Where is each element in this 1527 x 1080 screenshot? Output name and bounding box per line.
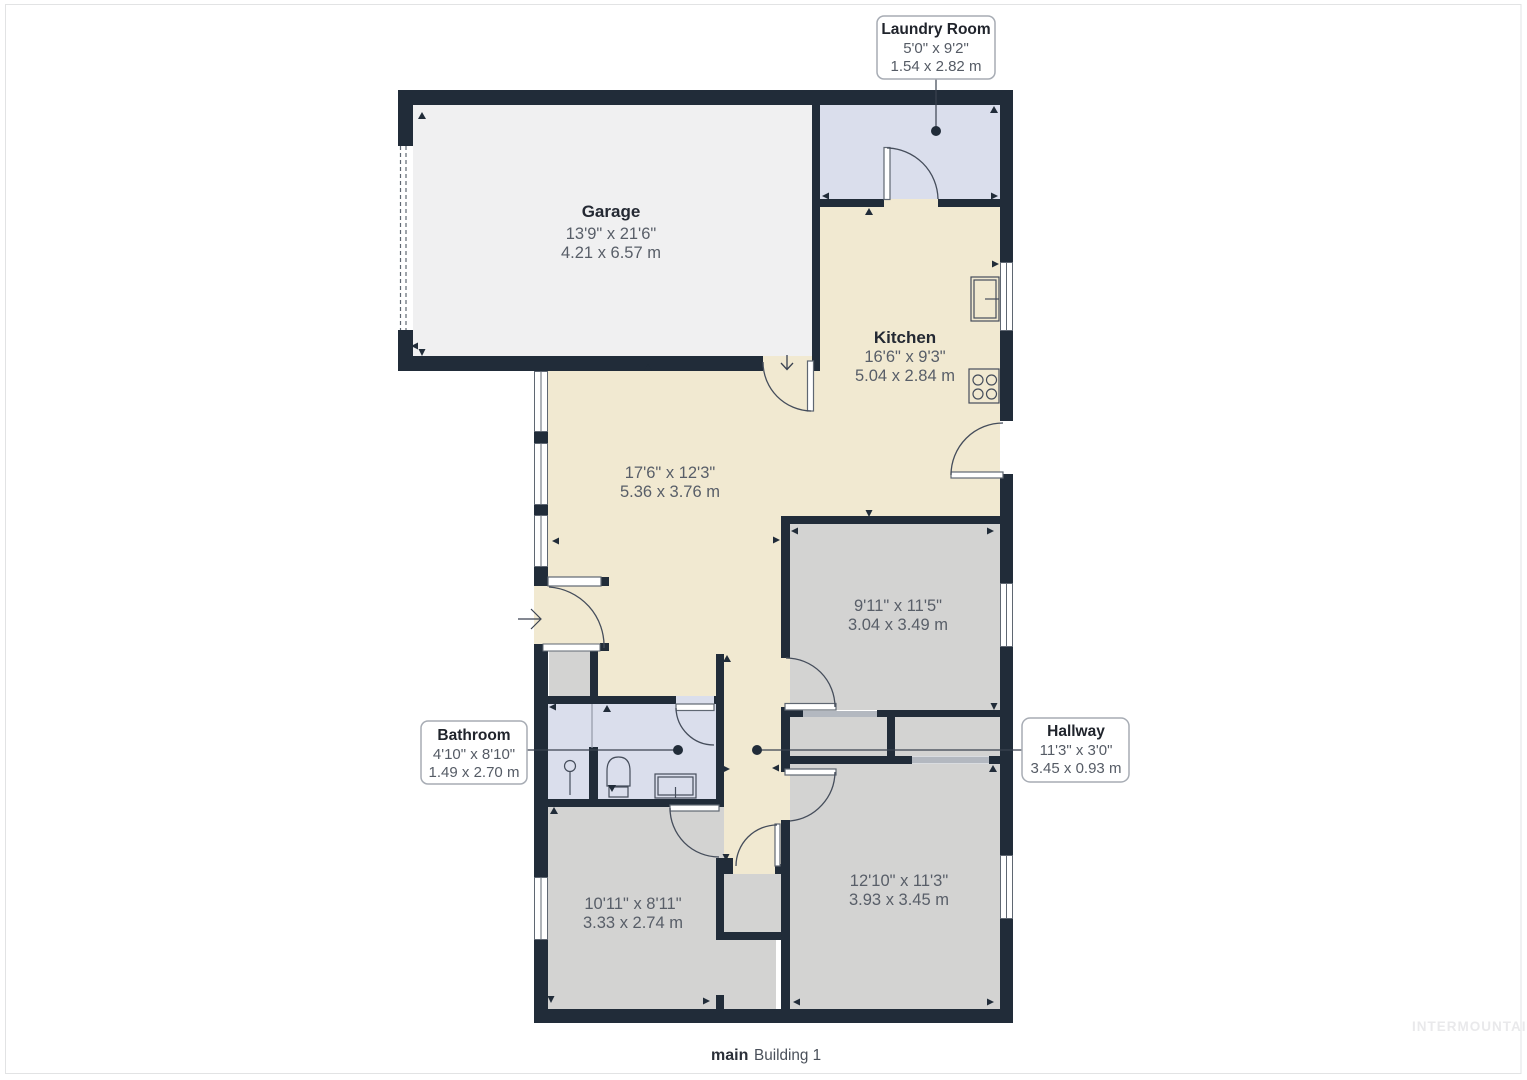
svg-text:16'6" x 9'3": 16'6" x 9'3" — [864, 348, 945, 366]
svg-text:3.45 x 0.93 m: 3.45 x 0.93 m — [1031, 760, 1122, 777]
svg-text:5.04 x 2.84 m: 5.04 x 2.84 m — [855, 367, 955, 385]
svg-text:Garage: Garage — [582, 202, 641, 221]
svg-text:3.04 x 3.49 m: 3.04 x 3.49 m — [848, 616, 948, 634]
svg-text:3.93 x 3.45 m: 3.93 x 3.45 m — [849, 891, 949, 909]
svg-text:1.54 x 2.82 m: 1.54 x 2.82 m — [891, 58, 982, 75]
svg-text:13'9" x 21'6": 13'9" x 21'6" — [566, 225, 657, 243]
svg-text:10'11" x 8'11": 10'11" x 8'11" — [584, 895, 681, 913]
svg-text:Building 1: Building 1 — [754, 1047, 821, 1064]
svg-text:1.49 x 2.70 m: 1.49 x 2.70 m — [429, 764, 520, 781]
svg-text:12'10" x 11'3": 12'10" x 11'3" — [850, 872, 949, 890]
svg-text:5'0" x 9'2": 5'0" x 9'2" — [903, 40, 969, 57]
svg-text:Bathroom: Bathroom — [437, 727, 510, 744]
svg-text:5.36 x 3.76 m: 5.36 x 3.76 m — [620, 483, 720, 501]
svg-text:INTERMOUNTAIN: INTERMOUNTAIN — [1412, 1019, 1527, 1034]
svg-text:Hallway: Hallway — [1047, 723, 1105, 740]
svg-text:3.33 x 2.74 m: 3.33 x 2.74 m — [583, 914, 683, 932]
svg-text:Laundry Room: Laundry Room — [881, 21, 990, 38]
svg-text:4.21 x 6.57 m: 4.21 x 6.57 m — [561, 244, 661, 262]
svg-text:9'11" x 11'5": 9'11" x 11'5" — [854, 597, 942, 615]
svg-text:main: main — [711, 1047, 748, 1064]
svg-text:11'3" x 3'0": 11'3" x 3'0" — [1040, 742, 1113, 759]
svg-text:Kitchen: Kitchen — [874, 328, 936, 347]
svg-text:4'10" x 8'10": 4'10" x 8'10" — [433, 746, 515, 763]
svg-text:17'6" x 12'3": 17'6" x 12'3" — [625, 464, 716, 482]
